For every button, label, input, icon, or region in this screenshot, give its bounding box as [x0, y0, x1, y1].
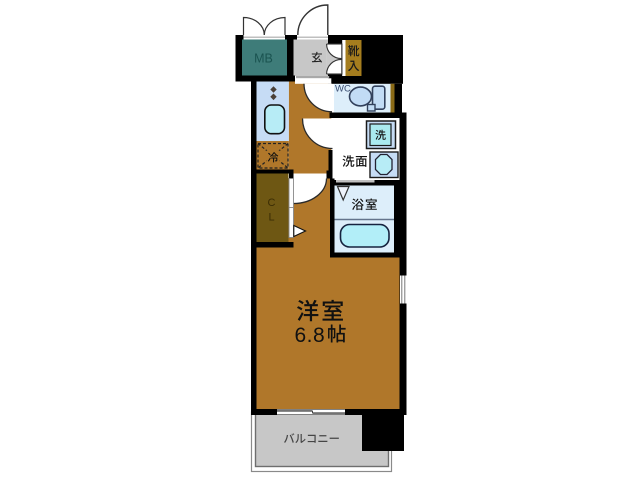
- svg-text:C: C: [268, 197, 276, 209]
- svg-text:MB: MB: [254, 52, 273, 66]
- svg-text:6.8: 6.8: [295, 324, 326, 347]
- svg-text:WC: WC: [335, 84, 351, 95]
- svg-text:L: L: [268, 212, 274, 224]
